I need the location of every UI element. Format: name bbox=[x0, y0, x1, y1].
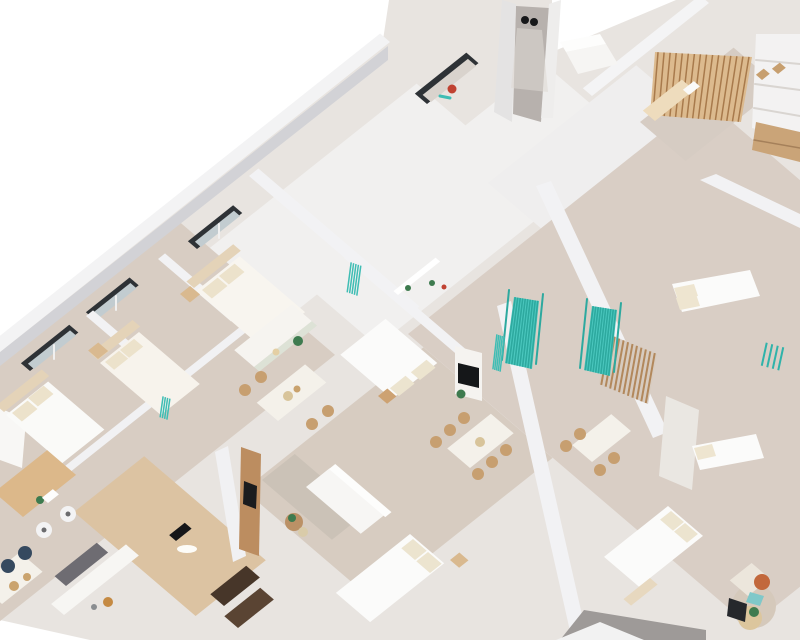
floorplan-canvas bbox=[0, 0, 800, 640]
counter-left-item bbox=[91, 604, 97, 610]
dining-a-chair-1 bbox=[239, 384, 251, 396]
ceiling-light-icon-a bbox=[521, 16, 529, 24]
shelf-plant-1 bbox=[405, 285, 411, 291]
dining-b-chair-6 bbox=[500, 444, 512, 456]
dining-d-chair-2 bbox=[18, 546, 32, 560]
dining-a-chair-3 bbox=[306, 418, 318, 430]
dining-b-chair-4 bbox=[472, 468, 484, 480]
dining-b-chair-1 bbox=[430, 436, 442, 448]
kitchen-plant bbox=[457, 390, 466, 399]
island-bowl bbox=[273, 349, 280, 356]
dining-c-chair-3 bbox=[594, 464, 606, 476]
dining-c-chair-4 bbox=[608, 452, 620, 464]
office-chair-1-base bbox=[42, 528, 47, 533]
side-table-plant bbox=[749, 607, 759, 617]
dining-b-chair-2 bbox=[444, 424, 456, 436]
dining-b-chair-3 bbox=[458, 412, 470, 424]
dining-a-bowl-2 bbox=[294, 386, 301, 393]
office-chair-2-base bbox=[66, 512, 71, 517]
dining-b-chair-5 bbox=[486, 456, 498, 468]
dining-b-bowl bbox=[475, 437, 485, 447]
window-art-teal bbox=[440, 96, 450, 98]
dining-d-plate-1 bbox=[9, 581, 19, 591]
floorplan-3d-render bbox=[0, 0, 800, 640]
ceiling-light-icon-b bbox=[530, 18, 538, 26]
dining-c-chair-1 bbox=[560, 440, 572, 452]
armchair-cushion bbox=[754, 574, 770, 590]
dining-a-chair-2 bbox=[255, 371, 267, 383]
tv-screen bbox=[243, 481, 257, 509]
dining-d-plate-2 bbox=[23, 573, 31, 581]
dining-d-chair-1 bbox=[1, 559, 15, 573]
dining-a-chair-4 bbox=[322, 405, 334, 417]
counter-left-bread bbox=[103, 597, 113, 607]
dining-a-bowl-1 bbox=[283, 391, 293, 401]
window-art-red bbox=[448, 85, 457, 94]
island-plant bbox=[293, 336, 303, 346]
dining-c-chair-2 bbox=[574, 428, 586, 440]
marble-wall bbox=[659, 396, 699, 490]
coffee-table-plant bbox=[288, 514, 296, 522]
hall-light-glow bbox=[177, 545, 197, 553]
shelf-plant-2 bbox=[429, 280, 435, 286]
shelf-item bbox=[442, 285, 447, 290]
pouf bbox=[298, 527, 308, 537]
ceiling-light-cone bbox=[511, 28, 548, 92]
